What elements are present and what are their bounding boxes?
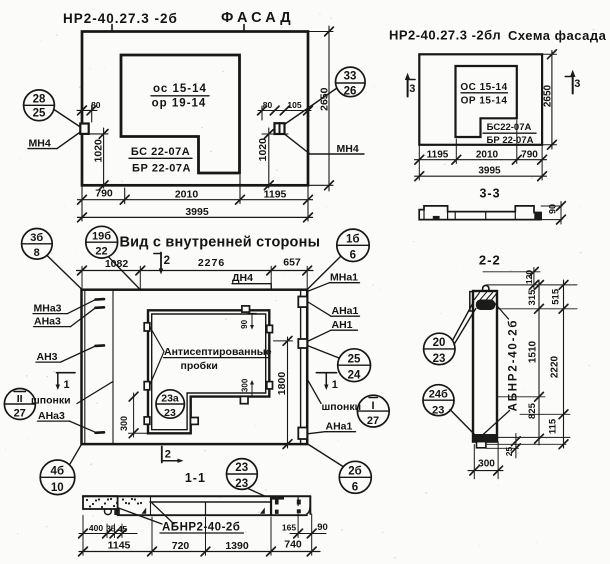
svg-text:БР 22-07А: БР 22-07А — [487, 135, 534, 146]
svg-text:БС 22-07А: БС 22-07А — [131, 146, 190, 158]
svg-text:790: 790 — [521, 149, 538, 160]
svg-text:2б: 2б — [348, 466, 362, 478]
svg-text:8: 8 — [34, 247, 40, 259]
svg-text:АНа1: АНа1 — [326, 421, 353, 433]
svg-text:БР 22-07А: БР 22-07А — [132, 163, 191, 175]
svg-text:300: 300 — [478, 459, 495, 470]
svg-text:Схема фасада: Схема фасада — [508, 28, 607, 43]
svg-text:2: 2 — [165, 449, 171, 461]
svg-text:АНа1: АНа1 — [332, 305, 359, 317]
svg-text:АНа3: АНа3 — [38, 410, 65, 422]
svg-text:90: 90 — [317, 522, 328, 533]
svg-text:АНа3: АНа3 — [34, 316, 61, 328]
svg-text:23: 23 — [432, 405, 444, 417]
svg-text:1195: 1195 — [264, 189, 287, 201]
svg-text:1: 1 — [63, 379, 69, 391]
svg-text:МНа3: МНа3 — [34, 303, 62, 315]
svg-text:3: 3 — [409, 83, 415, 95]
svg-text:2650: 2650 — [318, 87, 330, 111]
svg-text:740: 740 — [284, 539, 302, 551]
svg-text:515: 515 — [551, 288, 562, 305]
svg-text:2-2: 2-2 — [479, 253, 501, 268]
svg-text:23: 23 — [235, 462, 248, 474]
svg-text:МН4: МН4 — [29, 138, 51, 150]
svg-text:МН4: МН4 — [337, 143, 359, 155]
svg-text:22: 22 — [95, 246, 107, 258]
svg-text:ОС 15-14: ОС 15-14 — [460, 82, 507, 93]
svg-text:2220: 2220 — [549, 355, 560, 378]
svg-text:ФАСАД: ФАСАД — [221, 10, 295, 26]
svg-text:АН1: АН1 — [332, 319, 353, 331]
svg-text:80: 80 — [263, 100, 273, 110]
svg-text:АН3: АН3 — [37, 351, 58, 363]
svg-text:1800: 1800 — [276, 372, 288, 396]
svg-text:300: 300 — [241, 378, 250, 392]
svg-text:315: 315 — [527, 289, 538, 306]
svg-text:МНа1: МНа1 — [330, 272, 358, 284]
svg-text:НР2-40.27.3 -2б: НР2-40.27.3 -2б — [63, 11, 178, 26]
svg-text:27: 27 — [367, 415, 379, 427]
svg-text:23а: 23а — [161, 392, 179, 404]
svg-text:28: 28 — [33, 94, 46, 106]
svg-text:90: 90 — [240, 319, 249, 328]
svg-text:24б: 24б — [429, 388, 448, 400]
svg-text:20: 20 — [433, 337, 446, 349]
svg-text:3: 3 — [574, 78, 580, 90]
svg-text:45: 45 — [118, 524, 128, 534]
svg-text:26: 26 — [344, 86, 357, 98]
svg-text:2276: 2276 — [198, 257, 225, 269]
svg-text:23: 23 — [164, 407, 176, 419]
svg-text:165: 165 — [282, 523, 296, 533]
svg-text:АБНР2-40-2б: АБНР2-40-2б — [508, 319, 520, 412]
svg-text:790: 790 — [95, 188, 113, 200]
svg-text:657: 657 — [283, 257, 301, 269]
svg-text:1020: 1020 — [257, 138, 269, 162]
svg-text:6: 6 — [352, 482, 358, 494]
svg-text:1б: 1б — [346, 234, 360, 246]
svg-text:23: 23 — [433, 353, 446, 365]
svg-text:33: 33 — [344, 71, 357, 83]
svg-text:300: 300 — [119, 416, 129, 431]
svg-text:3-3: 3-3 — [479, 187, 500, 201]
svg-text:80: 80 — [91, 100, 101, 110]
svg-text:25: 25 — [348, 353, 361, 365]
svg-text:825: 825 — [527, 402, 538, 419]
svg-text:шпонки: шпонки — [322, 401, 362, 413]
svg-text:4б: 4б — [51, 466, 65, 478]
svg-text:шпонки: шпонки — [31, 395, 71, 407]
svg-text:35: 35 — [106, 524, 116, 534]
svg-text:ор 19-14: ор 19-14 — [152, 98, 207, 110]
svg-text:1020: 1020 — [92, 139, 104, 163]
svg-text:1510: 1510 — [527, 340, 538, 363]
svg-text:НР2-40.27.3 -2бл: НР2-40.27.3 -2бл — [389, 28, 501, 43]
svg-text:120: 120 — [524, 270, 534, 284]
svg-text:2650: 2650 — [542, 84, 553, 107]
svg-text:90: 90 — [548, 204, 558, 214]
svg-text:1195: 1195 — [427, 149, 449, 160]
svg-text:1-1: 1-1 — [185, 471, 206, 485]
svg-text:2010: 2010 — [175, 189, 199, 201]
svg-text:2010: 2010 — [476, 149, 499, 160]
svg-text:3995: 3995 — [185, 206, 209, 218]
svg-text:105: 105 — [287, 100, 301, 110]
svg-text:720: 720 — [172, 540, 190, 552]
svg-text:I: I — [371, 400, 374, 412]
svg-text:400: 400 — [89, 523, 103, 533]
svg-text:II: II — [17, 393, 23, 405]
svg-text:3б: 3б — [30, 232, 43, 244]
svg-text:1145: 1145 — [108, 539, 131, 551]
svg-text:27: 27 — [14, 408, 26, 420]
svg-text:ос 15-14: ос 15-14 — [153, 83, 207, 95]
svg-text:19б: 19б — [92, 231, 111, 243]
svg-text:10: 10 — [51, 482, 64, 494]
svg-text:Антисептированные: Антисептированные — [164, 346, 272, 358]
svg-text:23: 23 — [235, 478, 248, 490]
svg-text:115: 115 — [547, 418, 558, 434]
svg-text:ДН4: ДН4 — [232, 272, 253, 284]
svg-text:пробки: пробки — [181, 360, 218, 372]
svg-text:1082: 1082 — [105, 258, 129, 270]
svg-text:1: 1 — [332, 379, 338, 391]
svg-text:3995: 3995 — [478, 166, 501, 177]
svg-text:ОР 15-14: ОР 15-14 — [461, 96, 508, 107]
svg-text:6: 6 — [350, 250, 356, 262]
svg-text:Вид с внутренней стороны: Вид с внутренней стороны — [120, 235, 321, 251]
svg-text:БС22-07А: БС22-07А — [487, 122, 532, 133]
svg-text:2: 2 — [164, 255, 170, 267]
svg-text:24: 24 — [348, 370, 361, 382]
svg-text:1390: 1390 — [225, 540, 249, 552]
svg-text:25: 25 — [504, 447, 514, 457]
svg-text:25: 25 — [33, 107, 46, 119]
